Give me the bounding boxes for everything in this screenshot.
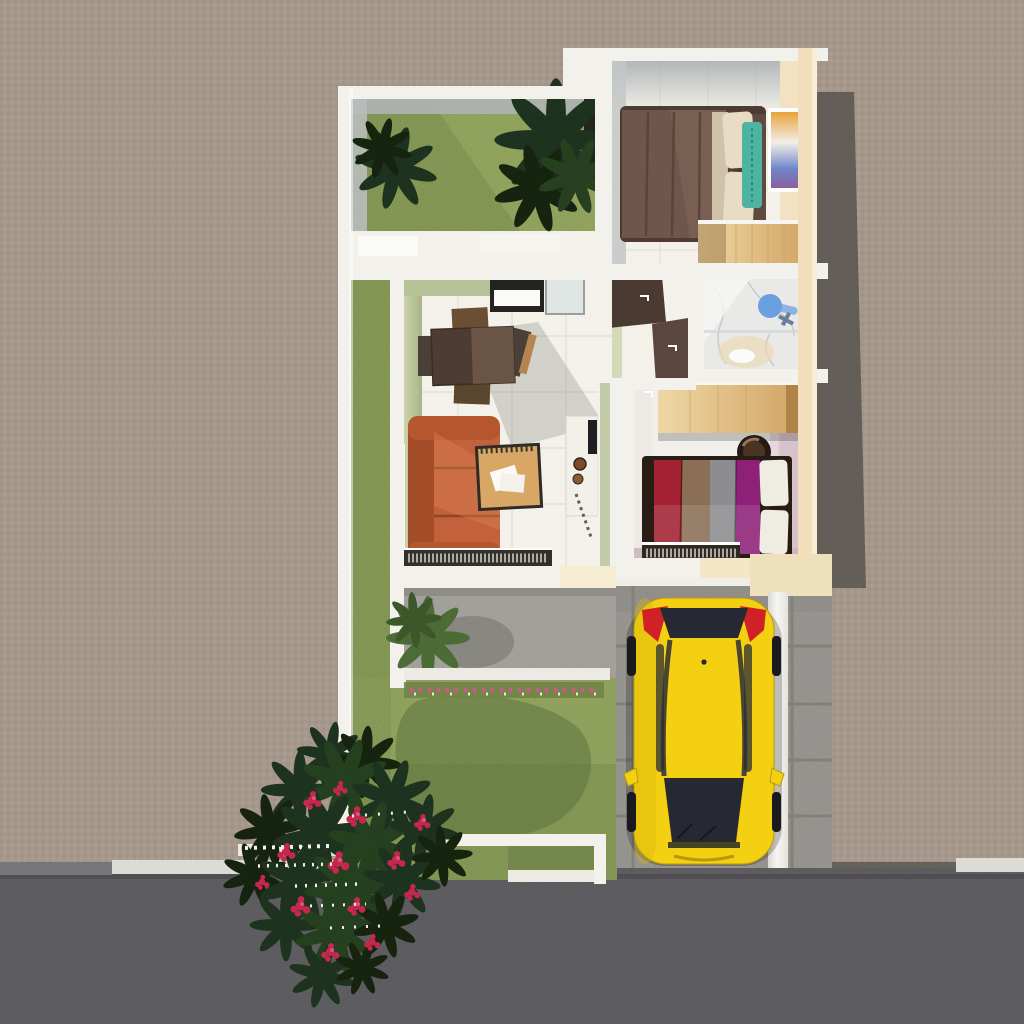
asphalt-road [0, 858, 1024, 1024]
yellow-car [624, 598, 784, 866]
floor-plan-render [0, 0, 1024, 1024]
wood-dresser [698, 220, 806, 266]
side-glass [744, 644, 752, 772]
terrace-edge [404, 668, 610, 680]
rear-window [660, 608, 748, 638]
courtyard-top-wall [338, 86, 595, 99]
wall-artwork [768, 108, 802, 192]
coffee-table [476, 444, 541, 509]
bedroom1-north-wall-face [612, 61, 798, 113]
bath-fixture [729, 349, 755, 363]
glass-door [546, 278, 584, 314]
white-pillow [759, 460, 789, 507]
bedroom-1 [612, 61, 806, 273]
curb-shadowed [0, 862, 112, 875]
living-dining-room [392, 278, 612, 568]
courtyard-garden [340, 78, 626, 264]
windshield [664, 778, 744, 842]
curb-right [956, 858, 1024, 872]
antenna [701, 659, 706, 664]
flower-bed [404, 682, 604, 698]
bedroom1-west-wall [595, 86, 612, 278]
gate-wall-top [750, 554, 832, 596]
bedroom-2 [634, 381, 798, 561]
wall-corner [563, 48, 612, 88]
window-sill-books [404, 548, 552, 566]
side-glass [656, 644, 664, 772]
scene-canvas [0, 0, 1024, 1024]
tv [588, 420, 597, 454]
sage-wall-top [404, 280, 492, 296]
bath-west-wall [688, 279, 704, 375]
dining-table [431, 327, 515, 386]
living-west-wall [390, 264, 404, 568]
white-pillow [759, 510, 789, 555]
kitchen-counter [494, 290, 540, 306]
open-door [652, 318, 692, 384]
bathroom [704, 279, 798, 371]
